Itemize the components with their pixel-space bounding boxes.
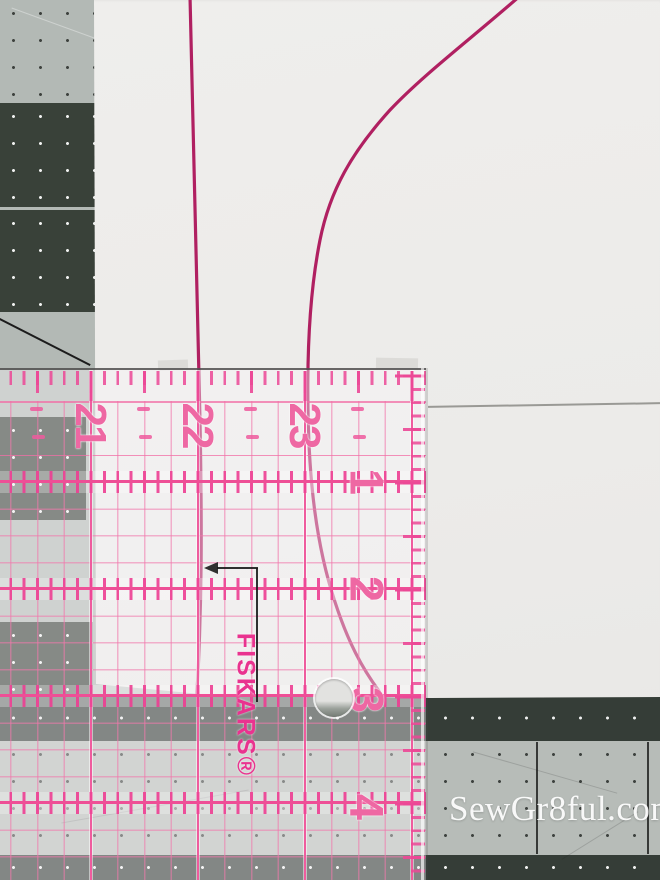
drawn-arrow-line (217, 567, 258, 569)
ruler-angle-dash (30, 407, 43, 411)
photo-quilting-ruler-on-mat: 21 22 23 1 2 3 4 FISKARS® SewGr8ful.com (0, 0, 660, 880)
ruler-number-2: 2 (340, 576, 395, 600)
ruler-line (0, 455, 426, 457)
ruler-edge-ticks (0, 371, 426, 401)
ruler-angle-dash (139, 435, 152, 439)
ruler-grid-horizontal (0, 468, 426, 880)
ruler-right-edge (421, 368, 424, 880)
drawn-arrow-head (204, 562, 218, 574)
ruler-angle-dash (137, 407, 150, 411)
ruler-top-edge (0, 368, 426, 370)
ruler-hole (315, 679, 353, 717)
ruler-number-21: 21 (65, 403, 115, 448)
ruler-angle-dash (244, 407, 257, 411)
ruler-angle-dash (32, 435, 45, 439)
ruler-number-4: 4 (340, 794, 395, 818)
ruler-number-23: 23 (279, 403, 329, 448)
ruler-number-22: 22 (172, 403, 222, 448)
watermark: SewGr8ful.com (449, 789, 660, 829)
ruler-angle-dash (353, 435, 366, 439)
ruler-angle-dash (351, 407, 364, 411)
quilting-ruler: 21 22 23 1 2 3 4 FISKARS® (0, 368, 426, 880)
ruler-edge-shadow (425, 368, 428, 880)
ruler-number-1: 1 (340, 469, 395, 493)
drawn-arrow-line (256, 568, 258, 702)
ruler-angle-dash (246, 435, 259, 439)
